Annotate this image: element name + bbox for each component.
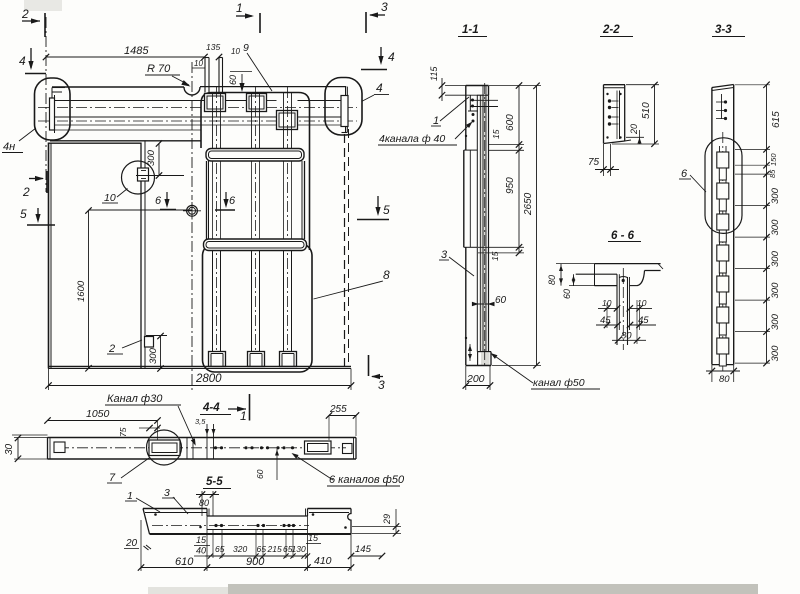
svg-text:75: 75 (588, 157, 600, 168)
svg-text:4: 4 (376, 81, 383, 95)
svg-text:300: 300 (770, 219, 781, 236)
svg-text:15: 15 (491, 129, 501, 139)
svg-text:2800: 2800 (195, 373, 222, 385)
svg-text:40: 40 (196, 546, 206, 556)
svg-text:85: 85 (768, 169, 777, 178)
svg-text:3,5: 3,5 (195, 417, 206, 426)
svg-text:20: 20 (125, 538, 138, 549)
svg-text:1-1: 1-1 (462, 24, 479, 36)
svg-text:300: 300 (770, 282, 781, 299)
svg-text:300: 300 (770, 187, 781, 204)
svg-text:80: 80 (547, 275, 557, 285)
svg-text:45: 45 (600, 315, 611, 326)
svg-text:3: 3 (164, 487, 170, 499)
svg-text:2: 2 (21, 7, 29, 21)
svg-text:15: 15 (308, 533, 319, 543)
svg-text:4: 4 (19, 54, 26, 68)
svg-text:R 70: R 70 (147, 63, 171, 75)
svg-text:10: 10 (194, 59, 203, 68)
svg-text:6: 6 (681, 168, 688, 180)
svg-text:300: 300 (770, 345, 781, 362)
svg-text:60: 60 (228, 75, 238, 85)
svg-text:215: 215 (267, 544, 282, 554)
svg-text:65: 65 (215, 544, 225, 554)
svg-text:410: 410 (314, 555, 332, 567)
svg-text:60: 60 (255, 469, 265, 479)
svg-text:15: 15 (490, 251, 500, 261)
svg-text:1: 1 (236, 1, 243, 15)
svg-text:6: 6 (229, 195, 236, 207)
svg-text:8: 8 (383, 268, 390, 282)
svg-text:канал ф50: канал ф50 (533, 377, 585, 389)
svg-text:6 каналов ф50: 6 каналов ф50 (329, 474, 405, 486)
svg-text:3: 3 (381, 0, 388, 14)
svg-text:1: 1 (433, 115, 439, 127)
svg-text:1050: 1050 (86, 408, 110, 420)
svg-text:130: 130 (292, 544, 306, 554)
svg-text:20: 20 (629, 124, 639, 135)
svg-text:1600: 1600 (76, 280, 87, 302)
svg-text:10: 10 (231, 47, 240, 56)
svg-text:900: 900 (246, 556, 265, 568)
svg-text:135: 135 (206, 42, 220, 52)
svg-text:65: 65 (257, 544, 267, 554)
svg-text:320: 320 (233, 544, 247, 554)
svg-text:80: 80 (199, 498, 209, 508)
svg-text:29: 29 (382, 514, 392, 525)
svg-text:4: 4 (388, 50, 395, 64)
svg-text:200: 200 (466, 373, 485, 385)
svg-text:600: 600 (505, 114, 516, 131)
svg-text:4н: 4н (3, 141, 15, 153)
svg-text:60: 60 (562, 289, 572, 299)
svg-text:5: 5 (20, 207, 27, 221)
svg-text:1: 1 (240, 409, 247, 423)
svg-text:1: 1 (127, 490, 133, 502)
svg-text:3: 3 (378, 378, 385, 392)
svg-text:60: 60 (495, 295, 507, 306)
svg-text:3-3: 3-3 (715, 24, 732, 36)
svg-text:150: 150 (769, 153, 778, 166)
svg-text:80: 80 (621, 331, 632, 342)
svg-text:2: 2 (22, 185, 30, 199)
svg-text:15: 15 (196, 535, 207, 545)
svg-text:30: 30 (4, 443, 15, 455)
svg-text:80: 80 (719, 374, 730, 385)
svg-text:Канал ф30: Канал ф30 (107, 393, 163, 405)
svg-text:510: 510 (641, 102, 652, 119)
svg-text:115: 115 (429, 66, 439, 81)
svg-text:10: 10 (637, 298, 647, 308)
svg-text:4-4: 4-4 (202, 402, 220, 414)
svg-text:300: 300 (148, 347, 159, 364)
svg-text:3: 3 (441, 249, 448, 261)
svg-text:7: 7 (109, 472, 116, 484)
svg-text:9: 9 (243, 42, 249, 54)
svg-text:300: 300 (770, 250, 781, 267)
svg-text:4канала ф 40: 4канала ф 40 (379, 133, 445, 145)
svg-text:1485: 1485 (124, 45, 149, 57)
svg-text:5-5: 5-5 (206, 476, 223, 488)
svg-text:2650: 2650 (523, 192, 534, 216)
svg-text:6: 6 (155, 195, 162, 207)
svg-text:2: 2 (108, 343, 115, 355)
svg-text:75: 75 (118, 427, 128, 437)
svg-text:5: 5 (383, 203, 390, 217)
svg-text:300: 300 (770, 313, 781, 330)
svg-text:300: 300 (146, 149, 157, 166)
svg-text:950: 950 (505, 177, 516, 194)
svg-text:6 - 6: 6 - 6 (611, 230, 635, 242)
svg-text:615: 615 (771, 111, 782, 128)
svg-text:145: 145 (355, 544, 372, 555)
svg-text:2-2: 2-2 (602, 24, 620, 36)
svg-text:610: 610 (175, 556, 194, 568)
svg-text:10: 10 (104, 192, 116, 204)
svg-text:255: 255 (329, 404, 347, 415)
